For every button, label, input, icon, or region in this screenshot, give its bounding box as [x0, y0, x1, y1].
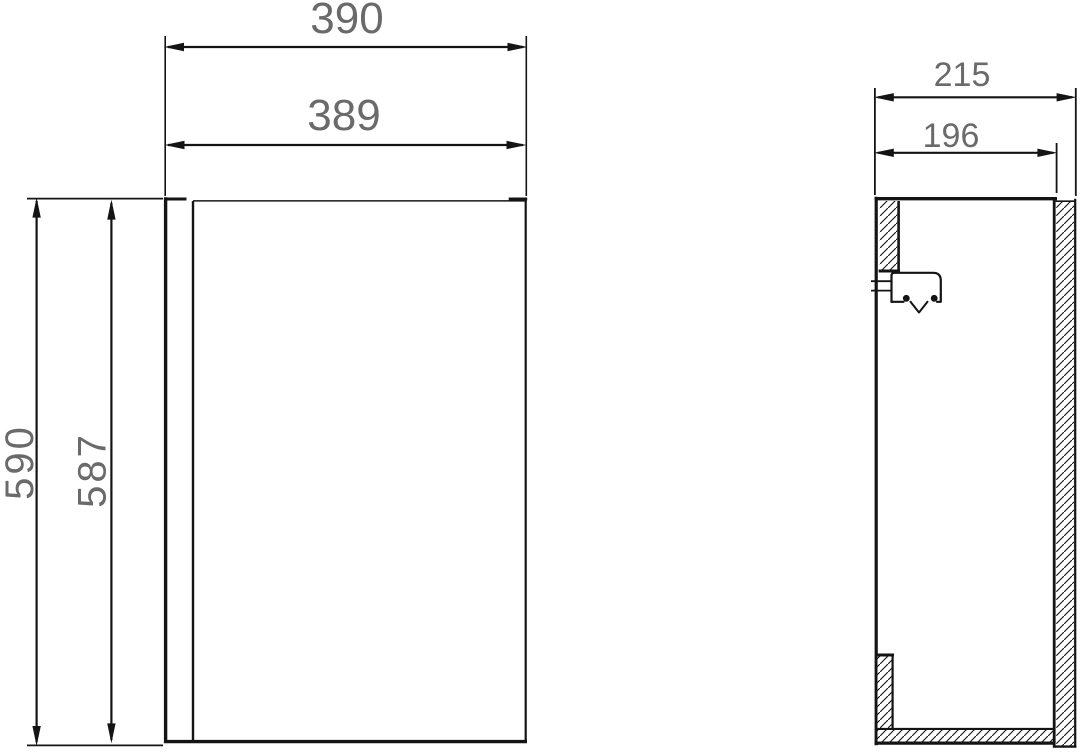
hinge-pin: [903, 295, 910, 302]
arrowhead-top: [32, 198, 40, 218]
arrowhead-left: [165, 141, 185, 149]
front-view: 390 389 590 587: [0, 0, 528, 746]
arrowhead-bottom: [32, 726, 40, 746]
arrowhead-left: [164, 43, 184, 51]
hinge-detail: [871, 273, 941, 313]
side-bottom-panel-section: [877, 729, 1054, 742]
arrowhead-bottom: [107, 723, 115, 743]
dim-label-side-outer-depth: 215: [934, 56, 991, 94]
arrowhead-right: [507, 141, 527, 149]
side-top-rail-section: [879, 201, 900, 272]
side-view: 215 196: [871, 56, 1077, 748]
dim-label-front-outer-width: 390: [310, 0, 383, 43]
arrowhead-left: [874, 149, 894, 157]
dimension-front-door-width: 389: [165, 91, 527, 149]
hatch-area: [878, 730, 1054, 742]
arrowhead-right: [1057, 93, 1077, 101]
drawing-sheet: 390 389 590 587: [0, 0, 1080, 752]
dim-label-front-door-width: 389: [307, 91, 380, 140]
arrowhead-top: [107, 200, 115, 220]
hinge-pin: [931, 295, 938, 302]
hatch-area: [880, 201, 898, 271]
dim-label-side-inner-depth: 196: [923, 117, 980, 155]
arrowhead-left: [874, 93, 894, 101]
technical-drawing: 390 389 590 587: [0, 0, 1080, 752]
side-door-section: [1053, 199, 1076, 748]
side-bottom-rail-section: [876, 655, 894, 729]
dimension-front-heights: 590 587: [0, 198, 163, 746]
arrowhead-right: [1037, 149, 1057, 157]
arrowhead-right: [508, 43, 528, 51]
dim-label-front-outer-height: 590: [0, 424, 42, 500]
hatch-area: [1056, 202, 1074, 746]
dimension-side-inner-depth: 196: [874, 117, 1058, 193]
dim-label-front-door-height: 587: [71, 432, 115, 508]
hinge-notch: [911, 302, 928, 313]
hatch-area: [878, 657, 892, 729]
